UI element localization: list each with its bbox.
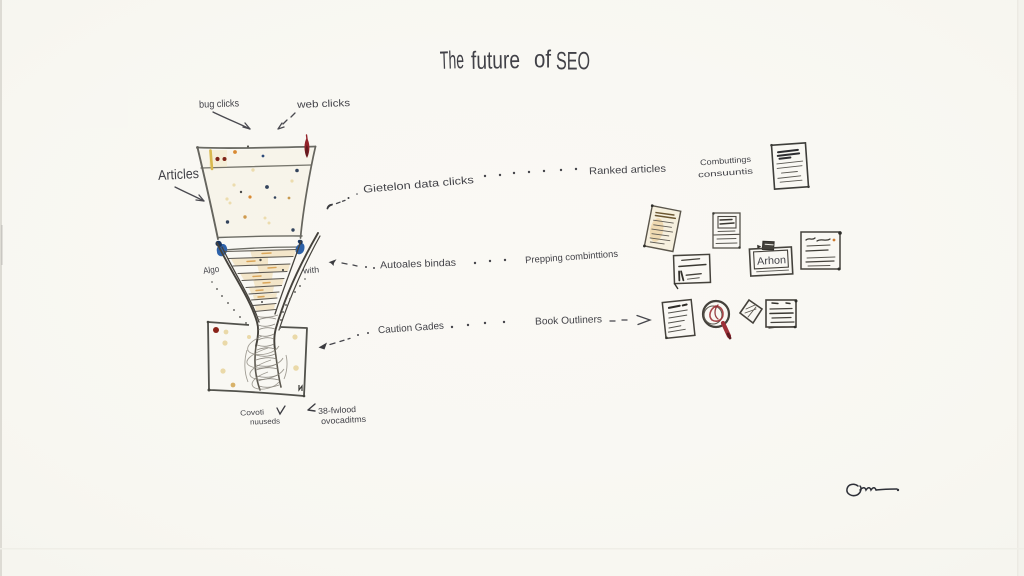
svg-text:with: with — [302, 264, 320, 275]
svg-text:Articles: Articles — [158, 165, 200, 183]
svg-text:Book Outliners: Book Outliners — [535, 314, 602, 327]
svg-text:Arhon: Arhon — [757, 254, 787, 268]
svg-text:bug clicks: bug clicks — [199, 98, 239, 110]
svg-text:Covoti: Covoti — [240, 407, 265, 417]
svg-text:nuuseds: nuuseds — [250, 416, 281, 426]
svg-text:SEO: SEO — [556, 48, 590, 76]
svg-text:future: future — [471, 46, 520, 75]
svg-text:of: of — [534, 46, 551, 74]
svg-text:The: The — [440, 46, 465, 75]
svg-text:web clicks: web clicks — [296, 98, 351, 111]
